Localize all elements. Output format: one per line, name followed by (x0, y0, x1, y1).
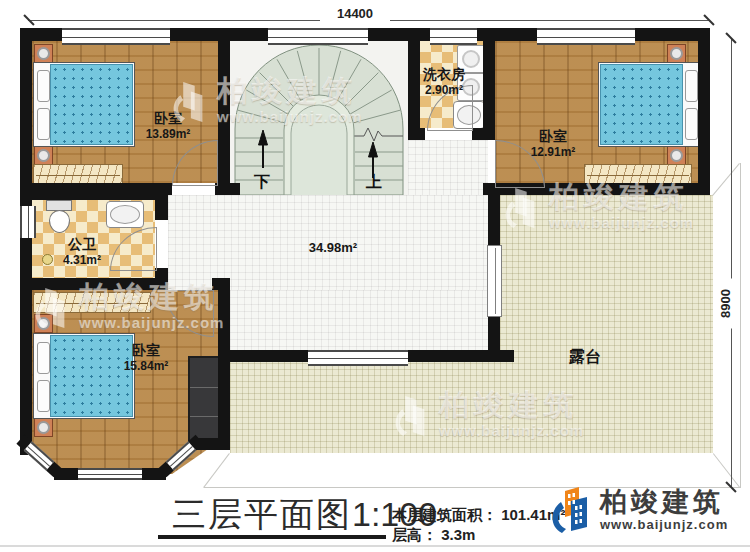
bathroom-sink (106, 201, 144, 228)
window-bedroom2 (537, 28, 635, 45)
watermark-name: 柏竣建筑 (549, 182, 694, 212)
pillow (37, 342, 50, 374)
mattress (50, 64, 133, 145)
window-stairwell (268, 28, 368, 45)
pillow (685, 70, 698, 102)
room-label-bedroom3: 卧室 15.84m² (106, 342, 186, 373)
room-label-bedroom2: 卧室 12.91m² (513, 128, 593, 159)
watermark-name: 柏竣建筑 (217, 76, 362, 106)
watermark-logo-icon (28, 284, 72, 332)
watermark-url: www.baijunjz.com (217, 106, 362, 127)
dimension-top-value: 14400 (320, 6, 390, 21)
terrace-eave-line-right (740, 163, 741, 488)
watermark-url: www.baijunjz.com (549, 212, 694, 233)
watermark: 柏竣建筑 www.baijunjz.com (498, 182, 694, 233)
wall-bay-center (54, 468, 166, 480)
floor-height-line: 层高： 3.3m (392, 526, 475, 545)
pillow (37, 108, 50, 140)
nightstand (34, 418, 53, 437)
watermark-url: www.baijunjz.com (439, 420, 584, 441)
floor-area-line: 本层建筑面积： 101.41m² (392, 506, 565, 525)
wall-bedroom1-bottom-b (215, 183, 240, 195)
pillow (685, 108, 698, 140)
floor-plan: 下 上 卧室 13.89m² 洗衣房 2.90m² (0, 0, 750, 552)
watermark-name: 柏竣建筑 (439, 390, 584, 420)
nightstand (34, 44, 53, 63)
room-label-terrace: 露台 (545, 347, 625, 366)
plan-title-text: 三层平面图 (172, 496, 352, 533)
sliding-door-terrace (487, 245, 502, 317)
wall-left (20, 28, 32, 455)
window-bedroom1 (62, 28, 170, 45)
mattress (600, 64, 683, 145)
stairs-up-label: 上 (362, 172, 386, 193)
bottom-rule (0, 545, 750, 547)
watermark: 柏竣建筑 www.baijunjz.com (166, 76, 362, 127)
room-label-hall: 34.98m² (293, 240, 373, 256)
brand-logo: 柏竣建筑 www.baijunjz.com (548, 485, 728, 535)
room-label-laundry: 洗衣房 2.90m² (404, 66, 484, 97)
watermark-url: www.baijunjz.com (79, 312, 224, 333)
wall-right (698, 28, 710, 195)
terrace-eave-diagonal-left (203, 453, 230, 488)
watermark-logo-icon (388, 392, 432, 440)
wall-hall-bottom-a (230, 350, 308, 362)
dimension-line-right (731, 38, 732, 488)
bed-bedroom1 (33, 62, 135, 147)
brand-name: 柏竣建筑 (600, 488, 728, 518)
floor-area-label: 本层建筑面积： (392, 506, 497, 523)
watermark-name: 柏竣建筑 (79, 282, 224, 312)
wall-hall-right-corner-stub (488, 350, 514, 362)
nightstand (34, 146, 53, 165)
wall-bathroom-right-a (155, 188, 168, 220)
floor-height-value: 3.3m (441, 526, 475, 543)
nightstand (667, 146, 686, 165)
pillow (37, 380, 50, 412)
brand-url: www.baijunjz.com (600, 517, 728, 532)
window-bathroom (20, 206, 36, 238)
wall-laundry-bedroom2 (483, 41, 495, 140)
wall-laundry-bottom-a (408, 128, 425, 140)
window-laundry (430, 28, 477, 45)
wall-bathroom-top (20, 188, 168, 200)
hall-corridor-floor (408, 140, 488, 195)
wall-bay-right-stub (196, 438, 230, 450)
dimension-right-value: 8900 (718, 279, 733, 329)
wall-hall-bottom-b (408, 350, 500, 362)
stairs-down-label: 下 (250, 172, 274, 193)
nightstand (667, 44, 686, 63)
watermark: 柏竣建筑 www.baijunjz.com (28, 282, 224, 333)
wardrobe-bedroom1 (33, 164, 123, 185)
bay-window-center (78, 468, 142, 480)
watermark: 柏竣建筑 www.baijunjz.com (388, 390, 584, 441)
watermark-logo-icon (166, 78, 210, 126)
pillow (37, 70, 50, 102)
title-underline (158, 535, 386, 539)
floor-height-label: 层高： (392, 526, 437, 543)
watermark-logo-icon (498, 184, 542, 232)
terrace-eave-diagonal-top (712, 163, 740, 196)
bed-bedroom2 (598, 62, 700, 147)
brand-logo-icon (548, 485, 594, 535)
window-hall-terrace (308, 350, 408, 366)
room-label-bathroom: 公卫 4.31m² (42, 236, 122, 267)
